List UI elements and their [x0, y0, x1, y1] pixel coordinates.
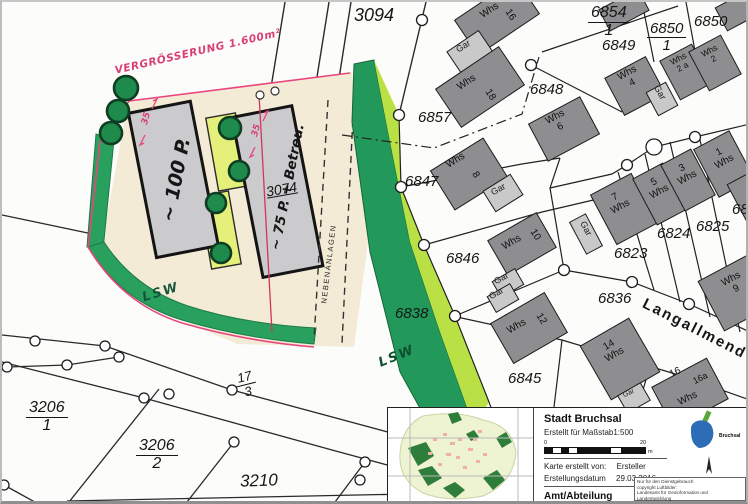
parcel-label-6849: 6849 [602, 38, 635, 54]
tree-icon [229, 161, 249, 181]
scale-start-label: 0 [544, 440, 547, 446]
house-shape [698, 255, 748, 331]
parcel-label-68-cut: 68 [732, 202, 748, 218]
parcel-label-3094: 3094 [354, 6, 394, 25]
city-title: Stadt Bruchsal [544, 413, 667, 425]
parcel-label-6857: 6857 [418, 110, 451, 126]
bruchsal-logo [675, 408, 747, 476]
scale-end-label: 20 [640, 440, 646, 446]
disclaimer-line: Landesamt für Geoinformation und Landent… [637, 490, 743, 501]
survey-point [646, 139, 662, 155]
created-by-label: Karte erstellt von: [544, 462, 606, 471]
parcel-label-6836: 6836 [598, 291, 631, 307]
survey-point [100, 341, 110, 351]
title-block: Stadt Bruchsal Erstellt für Maßstab1:500… [387, 407, 748, 502]
scale-unit-label: m [648, 449, 653, 455]
tree-icon [206, 193, 226, 213]
overview-minimap [388, 408, 534, 501]
tree-icon [100, 122, 122, 144]
parcel-label-6824: 6824 [657, 226, 690, 242]
survey-point [450, 311, 461, 322]
survey-point [417, 15, 428, 26]
house-shape [580, 318, 659, 400]
survey-point [2, 362, 12, 372]
survey-point [627, 277, 638, 288]
parcel-label-6825: 6825 [696, 219, 729, 235]
logo-blue-shape [691, 420, 713, 448]
survey-point [139, 393, 149, 403]
tree-icon [211, 243, 231, 263]
parcel-label-6823: 6823 [614, 246, 647, 262]
divider [544, 458, 667, 459]
parcel-label-6850-1: 6850 1 [647, 21, 686, 54]
survey-point [271, 87, 279, 95]
parcel-label-6847: 6847 [405, 174, 438, 190]
house-shape [488, 213, 556, 276]
survey-point [229, 437, 239, 447]
survey-point [622, 160, 633, 171]
scale-note: Erstellt für Maßstab1:500 [544, 428, 667, 437]
houses [431, 2, 748, 428]
scale-bar-graphic [544, 447, 646, 454]
parcel-label-3206-1: 3206 1 [26, 400, 68, 435]
survey-point [62, 360, 72, 370]
survey-point [256, 91, 264, 99]
survey-point [2, 480, 9, 490]
survey-point [684, 299, 695, 310]
tree-icon [114, 76, 138, 100]
survey-point [526, 60, 537, 71]
tree-icon [107, 100, 129, 122]
created-by-row: Karte erstellt von: Ersteller [544, 462, 667, 471]
survey-point [690, 132, 701, 143]
tree-icon [219, 117, 241, 139]
logo-caption: Bruchsal [719, 433, 740, 439]
parcel-label-3206-2: 3206 2 [136, 438, 178, 473]
date-label: Erstellungsdatum [544, 474, 606, 483]
created-by-value: Ersteller [616, 462, 645, 471]
survey-point [419, 240, 430, 251]
survey-point [360, 457, 370, 467]
survey-point [30, 336, 40, 346]
survey-point [114, 352, 124, 362]
parcel-label-6848: 6848 [530, 82, 563, 98]
parcel-label-6845: 6845 [508, 371, 541, 387]
disclaimer-box: Nur für den Dienstgebrauch copyright Luf… [634, 477, 746, 501]
parcel-label-6854: 6854 1 [588, 5, 630, 40]
survey-point [164, 389, 174, 399]
parcel-label-6838: 6838 [395, 306, 428, 322]
survey-point [394, 110, 405, 121]
scale-bar: 0 20 m [544, 441, 656, 455]
parcel-label-3210: 3210 [240, 471, 278, 490]
cadastral-plan-page: 3094 6854 1 6850 1 6850 6849 6848 6857 6… [0, 0, 748, 504]
north-arrow-icon [706, 456, 712, 474]
parcel-label-6846: 6846 [446, 251, 479, 267]
survey-point [355, 475, 365, 485]
parcel-label-6850: 6850 [694, 14, 727, 30]
survey-point [559, 265, 570, 276]
